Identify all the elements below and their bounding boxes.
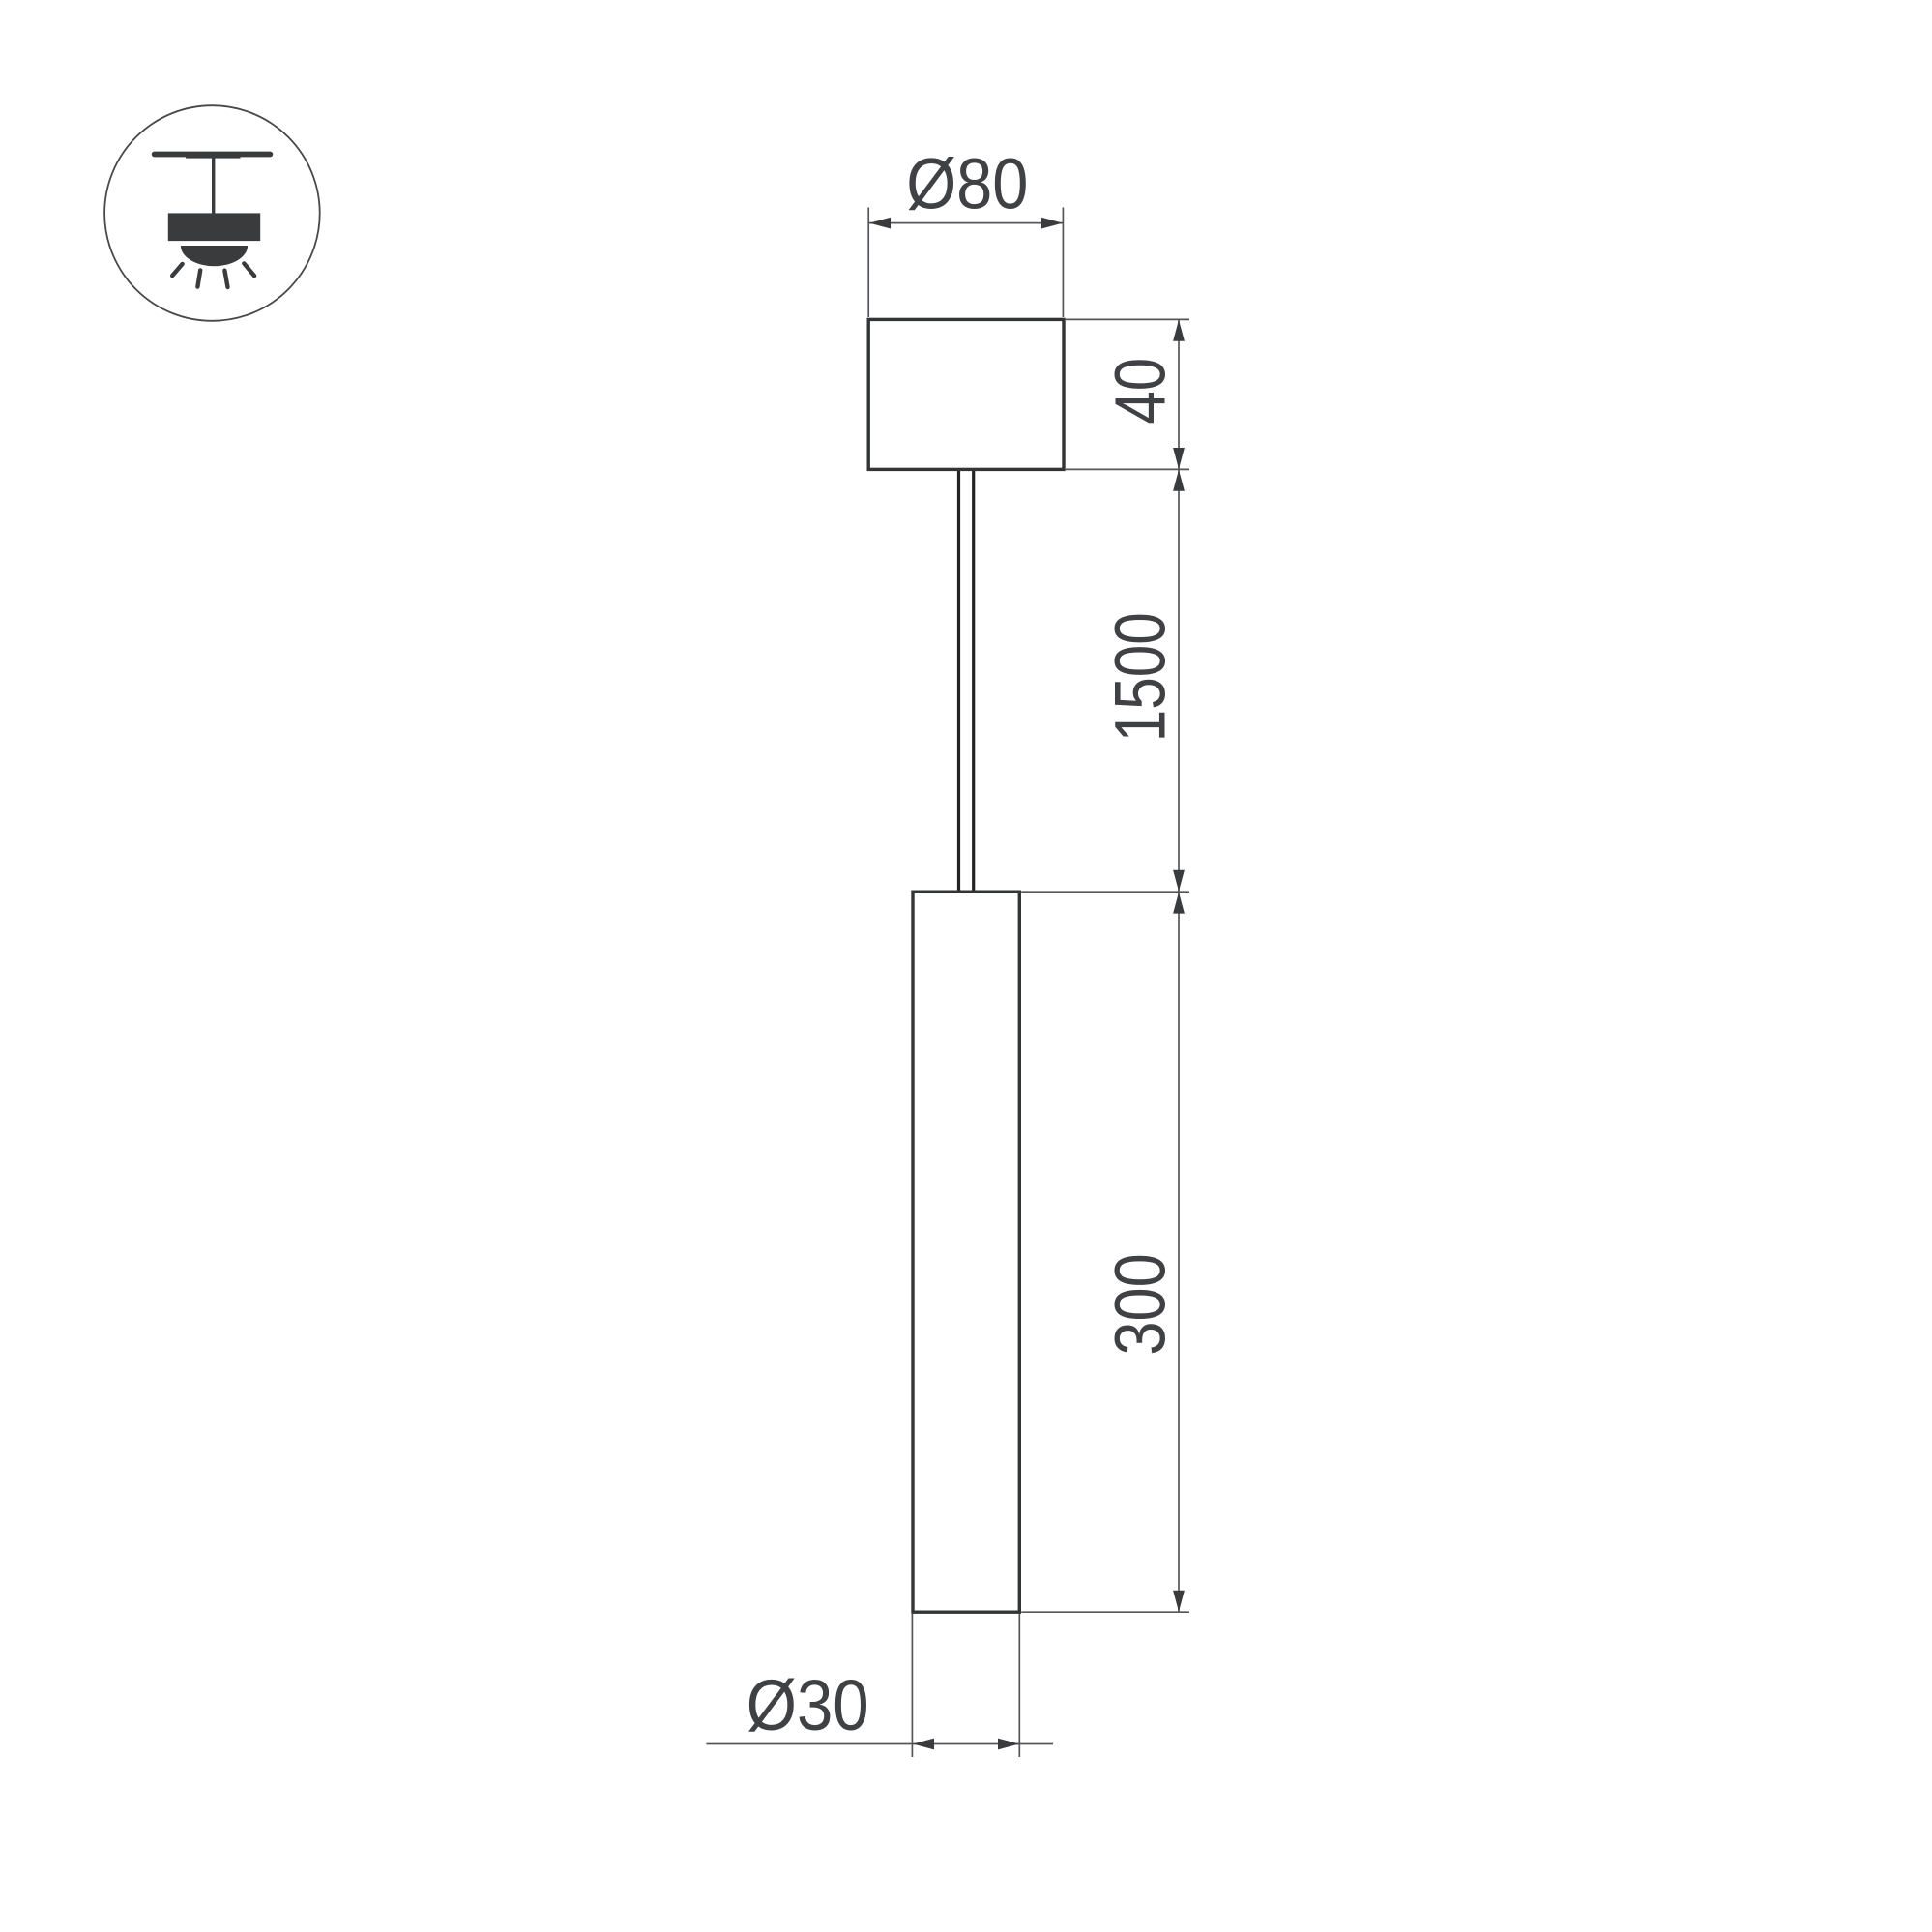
svg-text:Ø30: Ø30 (746, 1665, 869, 1745)
svg-text:300: 300 (1099, 1253, 1180, 1355)
svg-text:Ø80: Ø80 (906, 143, 1028, 223)
svg-text:1500: 1500 (1099, 612, 1180, 742)
svg-text:40: 40 (1099, 358, 1180, 424)
